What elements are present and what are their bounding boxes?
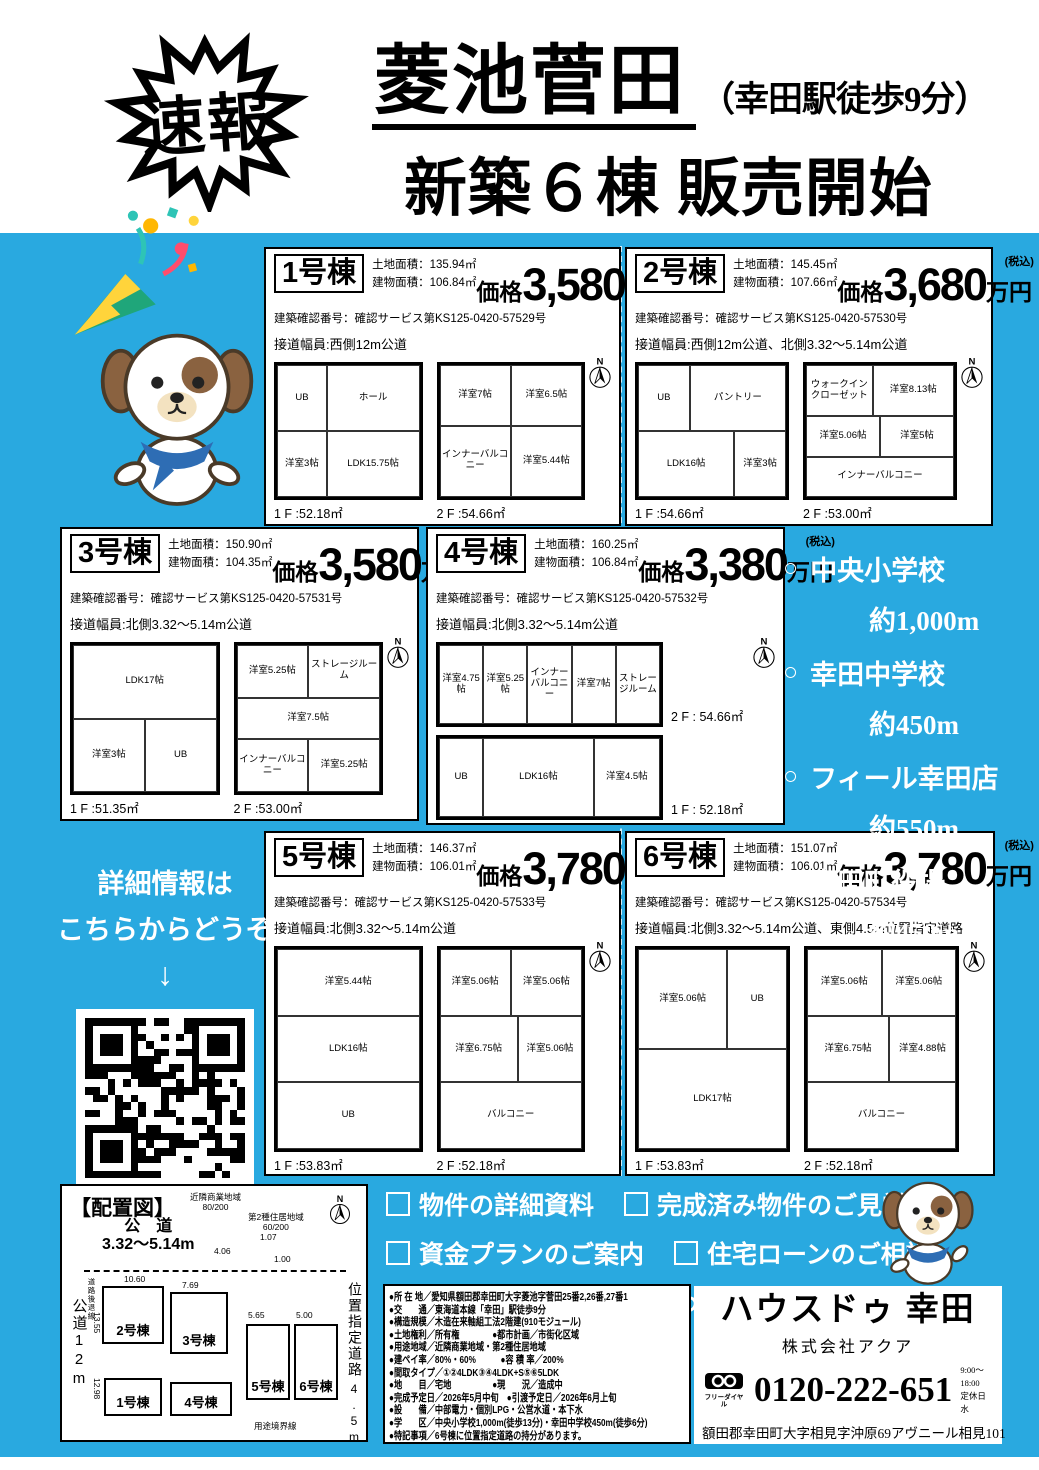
building-area-value: 106.84㎡ [430,277,477,289]
circle-bullet-icon: ○ [783,763,798,791]
floor-plan-1f: 洋室5.44帖 LDK16帖 UB 1 F :53.83㎡ [274,946,423,1174]
room-label: 洋室6.75帖 [807,1016,889,1083]
room-label: 洋室5.25帖 [308,739,380,792]
floor-area-2f: 2 F :54.66㎡ [437,503,586,522]
cta-label: 資金プランのご案内 [419,1235,644,1271]
title-row: 菱池菅田 （幸田駅徒歩9分） [372,44,989,130]
floor-plan-1f: UB パントリー LDK16帖 洋室3帖 1 F :54.66㎡ [635,362,789,522]
building-panel-3: 3号棟 土地面積：150.90㎡ 建物面積：104.35㎡ (税込) 価格3,5… [60,527,419,821]
confirmation-number: 建築確認番号：確認サービス第KS125-0420-57533号 [274,894,611,910]
zoning-ratio: 80/200 [190,1202,241,1212]
land-area-label: 土地面積： [534,539,592,551]
price-block: (税込) 価格3,680万円 [837,254,1034,307]
dog-mascot-small-icon [854,1172,1002,1290]
price-label: 価格 [837,279,883,305]
page-subtitle: 新築６棟 販売開始 [404,156,933,222]
detail-row: ●完成予定日／2026年5月中旬 ●引渡予定日／2026年6月上旬 [389,1392,620,1405]
room-label: 洋室4.75帖 [439,645,483,724]
road-frontage: 接道幅員:北側3.32～5.14m公道 [70,614,409,633]
building-name-badge: 1号棟 [274,254,364,293]
room-label: 洋室5.06帖 [638,949,727,1049]
boundary-label: 用途境界線 [254,1420,297,1432]
land-area-value: 150.90㎡ [226,539,273,551]
price-label: 価格 [272,559,318,585]
lot-6: 6号棟 [294,1324,338,1400]
road-width: 3.32～5.14m [102,1236,195,1254]
floor-area-2f: 2 F :53.00㎡ [234,798,384,817]
room-label: 洋室5.25帖 [483,645,527,724]
room-label: インナーバルコニー [237,739,309,792]
dimension: 5.00 [296,1310,313,1320]
road-right-width: 4.5m [347,1382,360,1446]
floor-plans: UB パントリー LDK16帖 洋室3帖 1 F :54.66㎡ ウォークインク… [635,362,983,522]
building-name-badge: 3号棟 [70,534,160,573]
building-panel-1: 1号棟 土地面積：135.94㎡ 建物面積：106.84㎡ (税込) 価格3,5… [264,247,621,526]
qr-caption-line1: 詳細情報は [52,862,278,908]
company-address: 額田郡幸田町大字相見字沖原69アヴニール相見101 [702,1422,994,1442]
svg-text:N: N [597,357,604,368]
company-info: ハウスドゥ 幸田 株式会社アクア フリーダイヤル 0120-222-651 9:… [694,1286,1002,1444]
site-layout-plan: 【配置図】 近隣商業地域 80/200 第2種住居地域 60/200 N 公 道… [60,1184,368,1442]
detail-row: ●設 備／中部電力・個別LPG・公営水道・本下水 [389,1404,620,1417]
room-label: 洋室4.88帖 [889,1016,956,1083]
down-arrow-icon: ↓ [52,954,278,996]
floor-plan-2f: 洋室5.06帖 洋室5.06帖 洋室6.75帖 洋室5.06帖 バルコニー 2 … [437,946,586,1174]
checkbox-icon [386,1192,410,1216]
tax-note: (税込) [1005,253,1034,269]
facility-item: ○フィール幸田店 [783,757,1035,796]
room-label: UB [277,365,327,431]
road-right-label: 位置指定道路 [347,1282,362,1378]
detail-row: ●土地権利／所有権 ●都市計画／市街化区域 [389,1329,620,1342]
room-label: 洋室7帖 [440,365,511,426]
building-area-label: 建物面積： [372,277,430,289]
room-label: インナーバルコニー [440,426,511,497]
room-label: パントリー [690,365,786,431]
building-area-value: 106.84㎡ [592,557,639,569]
lot-1: 1号棟 [104,1378,162,1416]
land-area-label: 土地面積： [733,259,791,271]
floor-area-1f: 1 F :53.83㎡ [635,1155,790,1174]
dimension: 1.07 [260,1232,277,1242]
road-name: 公 道 [102,1218,195,1236]
room-label: UB [727,949,787,1049]
room-label: 洋室8.13帖 [873,365,954,416]
room-label: ホール [327,365,420,431]
cta-item: 資金プランのご案内 [386,1235,644,1271]
lot-2: 2号棟 [102,1286,164,1344]
dimension: 13.55 [92,1312,102,1333]
building-name-badge: 5号棟 [274,838,364,877]
compass-icon: N [328,1194,352,1226]
room-label: 洋室5.06帖 [882,949,957,1016]
building-area-value: 106.01㎡ [430,861,477,873]
detail-row: ●学 区／中央小学校1,000m(徒歩13分)・幸田中学校450m(徒歩6分) [389,1417,620,1430]
checkbox-icon [674,1241,698,1265]
facility-item: ○中央小学校 [783,549,1035,588]
room-label: 洋室5.06帖 [807,949,882,1016]
room-label: LDK16帖 [483,738,594,817]
price-label: 価格 [638,559,684,585]
land-area-value: 145.45㎡ [791,259,838,271]
svg-text:N: N [969,357,976,368]
building-panel-5: 5号棟 土地面積：146.37㎡ 建物面積：106.01㎡ (税込) 価格3,7… [264,831,621,1176]
room-label: 洋室7帖 [572,645,616,724]
floor-plan-2f: 洋室5.25帖 ストレージルーム 洋室7.5帖 インナーバルコニー 洋室5.25… [234,642,384,817]
confirmation-number: 建築確認番号：確認サービス第KS125-0420-57532号 [436,590,775,606]
floor-plan-1f: UB LDK16帖 洋室4.5帖 1 F : 52.18㎡ [436,735,749,820]
company-name: ハウスドゥ 幸田 [702,1292,994,1328]
room-label: UB [145,719,217,793]
land-area-label: 土地面積： [372,259,430,271]
facility-name: 幸田中学校 [810,653,945,692]
building-name-badge: 2号棟 [635,254,725,293]
floor-plans: LDK17帖 洋室3帖 UB 1 F :51.35㎡ 洋室5.25帖 ストレージ… [70,642,409,817]
confirmation-number: 建築確認番号：確認サービス第KS125-0420-57531号 [70,590,409,606]
room-label: 洋室5.06帖 [806,416,880,456]
building-area-label: 建物面積： [534,557,592,569]
facility-name: 幸田町役場 [810,861,945,900]
circle-bullet-icon: ○ [783,659,798,687]
compass-icon: N [959,356,985,390]
dimension: 7.69 [182,1280,199,1290]
room-label: 洋室6.5帖 [511,365,582,426]
property-details-table: ●所 在 地／愛知県額田郡幸田町大字菱池字菅田25番2,26番,27番1 ●交 … [383,1284,691,1444]
land-area-label: 土地面積： [372,843,430,855]
nearby-facilities: ○中央小学校 約1,000m ○幸田中学校 約450m ○フィール幸田店 約55… [783,534,1035,955]
business-hours: 9:00～18:00 定休日 水 [960,1364,994,1415]
dimension: 12.98 [92,1378,102,1399]
room-label: 洋室7.5帖 [237,698,381,740]
closed-day: 定休日 水 [960,1390,994,1416]
facility-distance: 約450m [869,911,1035,950]
flyer-page: 速報 菱池菅田 （幸田駅徒歩9分） 新築６棟 販売開始 [0,0,1039,1470]
price-value: 3,580 [318,539,421,590]
room-label: バルコニー [807,1082,956,1149]
room-label: 洋室5.25帖 [237,645,309,698]
room-label: 洋室5.06帖 [440,949,511,1016]
room-label: 洋室3帖 [73,719,145,793]
detail-row: ●建ペイ率／80%・60% ●容 積 率／200% [389,1354,620,1367]
floor-area-1f: 1 F :54.66㎡ [635,503,789,522]
floor-plan-1f: LDK17帖 洋室3帖 UB 1 F :51.35㎡ [70,642,220,817]
breaking-news-burst: 速報 [88,28,326,212]
checkbox-icon [624,1192,648,1216]
floor-plan-2f: 洋室4.75帖 洋室5.25帖 インナーバルコニー 洋室7帖 ストレージルーム … [436,642,749,727]
compass-icon: N [587,940,613,974]
facility-distance: 約450m [869,703,1035,742]
floor-area-2f: 2 F :53.00㎡ [803,503,957,522]
zoning-label-2: 第2種住居地域 60/200 [248,1212,304,1232]
dimension: 4.06 [214,1246,231,1256]
room-label: バルコニー [440,1082,583,1149]
qr-code [85,1018,245,1178]
road-frontage: 接道幅員:北側3.32～5.14m公道 [436,614,775,633]
title-note: （幸田駅徒歩9分） [700,71,989,122]
lot-5: 5号棟 [246,1324,290,1400]
road-dashed-line [84,1270,346,1272]
room-label: 洋室3帖 [277,431,327,497]
room-label: 洋室5.06帖 [518,1016,582,1083]
floor-area-1f: 1 F :51.35㎡ [70,798,220,817]
building-area-label: 建物面積： [733,277,791,289]
price-value: 3,780 [522,843,625,894]
zoning-name: 近隣商業地域 [190,1192,241,1202]
svg-text:N: N [395,637,402,648]
zoning-ratio: 60/200 [248,1222,304,1232]
phone-row: フリーダイヤル 0120-222-651 9:00～18:00 定休日 水 [702,1364,994,1415]
circle-bullet-icon: ○ [783,867,798,895]
detail-row: ●交 通／東海道本線「幸田」駅徒歩9分 [389,1304,620,1317]
zoning-name: 第2種住居地域 [248,1212,304,1222]
circle-bullet-icon: ○ [783,555,798,583]
floor-area-1f: 1 F :53.83㎡ [274,1155,423,1174]
land-area-label: 土地面積： [168,539,226,551]
room-label: LDK16帖 [277,1016,420,1083]
compass-icon: N [385,636,411,670]
building-name-badge: 4号棟 [436,534,526,573]
building-panel-2: 2号棟 土地面積：145.45㎡ 建物面積：107.66㎡ (税込) 価格3,6… [625,247,993,526]
room-label: LDK17帖 [638,1049,787,1149]
dimension: 1.00 [274,1254,291,1264]
land-area-value: 135.94㎡ [430,259,477,271]
floor-plans: UB ホール 洋室3帖 LDK15.75帖 1 F :52.18㎡ 洋室7帖 洋… [274,362,611,522]
svg-text:N: N [337,1194,344,1204]
room-label: インナーバルコニー [806,457,954,497]
facility-item: ○幸田町役場 [783,861,1035,900]
room-label: 洋室6.75帖 [440,1016,518,1083]
svg-text:N: N [761,637,768,648]
road-top-label: 公 道 3.32～5.14m [102,1218,195,1255]
room-label: UB [439,738,483,817]
area-info: 土地面積：135.94㎡ 建物面積：106.84㎡ [372,257,476,293]
building-area-label: 建物面積： [168,557,226,569]
road-frontage: 接道幅員:北側3.32～5.14m公道 [274,918,611,937]
room-label: 洋室5.44帖 [511,426,582,497]
detail-row: ●構造規模／木造在来軸組工法2階建(910モジュール) [389,1316,620,1329]
facility-item: ○幸田中学校 [783,653,1035,692]
room-label: 洋室5.44帖 [277,949,420,1016]
road-frontage: 接道幅員:西側12m公道、北側3.32～5.14m公道 [635,334,983,353]
confirmation-number: 建築確認番号：確認サービス第KS125-0420-57529号 [274,310,611,326]
price-value: 3,380 [684,539,787,590]
price-label: 価格 [476,279,522,305]
dimension: 5.65 [248,1310,265,1320]
qr-section: 詳細情報は こちらからどうぞ ↓ [52,862,278,1187]
room-label: ストレージルーム [308,645,380,698]
freedial-label: フリーダイヤル [705,1394,744,1408]
floor-plans: 洋室5.44帖 LDK16帖 UB 1 F :53.83㎡ 洋室5.06帖 洋室… [274,946,611,1174]
building-panel-4: 4号棟 土地面積：160.25㎡ 建物面積：106.84㎡ (税込) 価格3,3… [426,527,785,825]
floor-plan-2f: 洋室5.06帖 洋室5.06帖 洋室6.75帖 洋室4.88帖 バルコニー 2 … [804,946,959,1174]
room-label: LDK16帖 [638,431,734,497]
qr-caption-line2: こちらからどうぞ [52,908,278,954]
room-label: UB [277,1082,420,1149]
facility-distance: 約1,000m [869,599,1035,638]
room-label: ウォークインクローゼット [806,365,873,416]
land-area-value: 160.25㎡ [592,539,639,551]
detail-row: ●所 在 地／愛知県額田郡幸田町大字菱池字菅田25番2,26番,27番1 [389,1291,620,1304]
building-name-badge: 6号棟 [635,838,725,877]
price-value: 3,680 [883,259,986,310]
lot-3: 3号棟 [170,1292,228,1354]
facility-distance: 約550m [869,807,1035,846]
zoning-label-1: 近隣商業地域 80/200 [190,1192,241,1212]
company-corp: 株式会社アクア [702,1333,994,1357]
compass-icon: N [587,356,613,390]
price-value: 3,580 [522,259,625,310]
svg-text:N: N [597,941,604,952]
road-frontage: 接道幅員:西側12m公道 [274,334,611,353]
burst-label: 速報 [82,20,332,220]
land-area-value: 146.37㎡ [430,843,477,855]
facility-name: フィール幸田店 [810,757,998,796]
confirmation-number: 建築確認番号：確認サービス第KS125-0420-57530号 [635,310,983,326]
floor-plan-2f: ウォークインクローゼット 洋室8.13帖 洋室5.06帖 洋室5帖 インナーバル… [803,362,957,522]
floor-area-2f: 2 F :52.18㎡ [437,1155,586,1174]
dog-mascot-icon [86,316,268,516]
dimension: 10.60 [124,1274,145,1284]
panel-header: 1号棟 土地面積：135.94㎡ 建物面積：106.84㎡ (税込) 価格3,5… [274,254,611,307]
road-left-label: 公道12m [70,1298,87,1389]
floor-plan-1f: 洋室5.06帖 UB LDK17帖 1 F :53.83㎡ [635,946,790,1174]
building-area-value: 107.66㎡ [791,277,838,289]
page-title: 菱池菅田 [372,44,696,130]
floor-area-2f: 2 F : 54.66㎡ [671,706,749,725]
price-label: 価格 [476,863,522,889]
detail-row: ●間取タイプ／①②4LDK③④4LDK+S⑤⑥5LDK [389,1367,620,1380]
floor-plan-2f: 洋室7帖 洋室6.5帖 インナーバルコニー 洋室5.44帖 2 F :54.66… [437,362,586,522]
freedial-icon: フリーダイヤル [702,1372,746,1408]
floor-plans: 洋室5.06帖 UB LDK17帖 1 F :53.83㎡ 洋室5.06帖 洋室… [635,946,985,1174]
room-label: 洋室5.06帖 [511,949,582,1016]
room-label: UB [638,365,690,431]
floor-plan-1f: UB ホール 洋室3帖 LDK15.75帖 1 F :52.18㎡ [274,362,423,522]
room-label: 洋室3帖 [734,431,786,497]
qr-code-frame [76,1009,254,1187]
floor-plans: 洋室4.75帖 洋室5.25帖 インナーバルコニー 洋室7帖 ストレージルーム … [436,642,775,820]
detail-row: ●用途地域／近隣商業地域・第2種住居地域 [389,1341,620,1354]
building-area-value: 104.35㎡ [226,557,273,569]
room-label: LDK15.75帖 [327,431,420,497]
checkbox-icon [386,1241,410,1265]
room-label: ストレージルーム [616,645,660,724]
cta-item: 物件の詳細資料 [386,1186,594,1222]
lot-4: 4号棟 [170,1382,232,1416]
detail-row: ●地 目／宅地 ●現 況／造成中 [389,1379,620,1392]
facility-name: 中央小学校 [810,549,945,588]
phone-number: 0120-222-651 [754,1370,952,1410]
compass-icon: N [751,636,777,670]
floor-area-1f: 1 F :52.18㎡ [274,503,423,522]
detail-row: ●特記事項／6号棟に位置指定道路の持分があります。 [389,1430,620,1443]
floor-area-1f: 1 F : 52.18㎡ [671,799,749,818]
room-label: 洋室5帖 [880,416,954,456]
hours-value: 9:00～18:00 [960,1364,994,1390]
room-label: 洋室4.5帖 [594,738,660,817]
price-unit: 万円 [986,279,1032,305]
room-label: LDK17帖 [73,645,217,719]
room-label: インナーバルコニー [527,645,571,724]
building-area-label: 建物面積： [372,861,430,873]
cta-label: 物件の詳細資料 [419,1186,594,1222]
